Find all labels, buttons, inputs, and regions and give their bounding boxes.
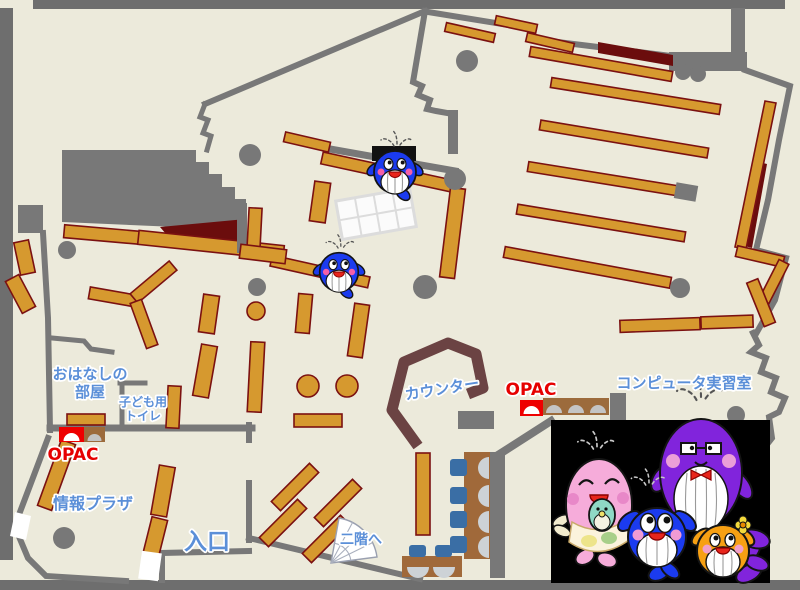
label-opac-counter: OPAC [506,380,557,400]
label-to-second-floor: 二階へ [340,531,382,548]
label-story-room-line2: 部屋 [75,383,105,401]
wall-corner-block [18,205,43,233]
floor-map-svg: おはなしの 部屋 子ども用 トイレ OPAC 情報プラザ 入口 二階へ カウンタ… [0,0,800,590]
label-story-room-line1: おはなしの [52,365,127,383]
frame-top [33,0,785,9]
opac-station-childrens [59,427,105,442]
label-computer-room: コンピュータ実習室 [616,374,751,392]
label-kids-toilet-line2: トイレ [125,409,161,423]
library-floor-map: おはなしの 部屋 子ども用 トイレ OPAC 情報プラザ 入口 二階へ カウンタ… [0,0,800,590]
opac-station-counter [520,398,609,416]
label-kids-toilet-line1: 子ども用 [119,395,167,409]
label-opac-childrens: OPAC [48,445,99,465]
label-entrance: 入口 [184,529,230,555]
label-info-plaza: 情報プラザ [53,494,133,513]
door-gap [138,551,162,582]
baby-whale-mascot [589,499,615,531]
mascot-photo [551,419,772,587]
